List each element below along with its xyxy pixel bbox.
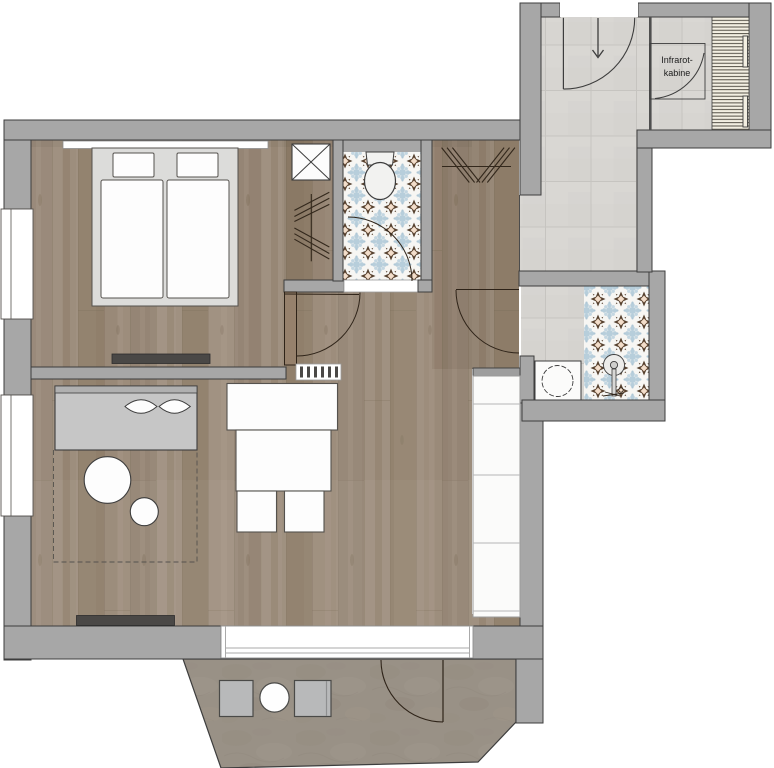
- svg-text:kabine: kabine: [664, 68, 691, 78]
- svg-text:Infrarot-: Infrarot-: [661, 55, 693, 65]
